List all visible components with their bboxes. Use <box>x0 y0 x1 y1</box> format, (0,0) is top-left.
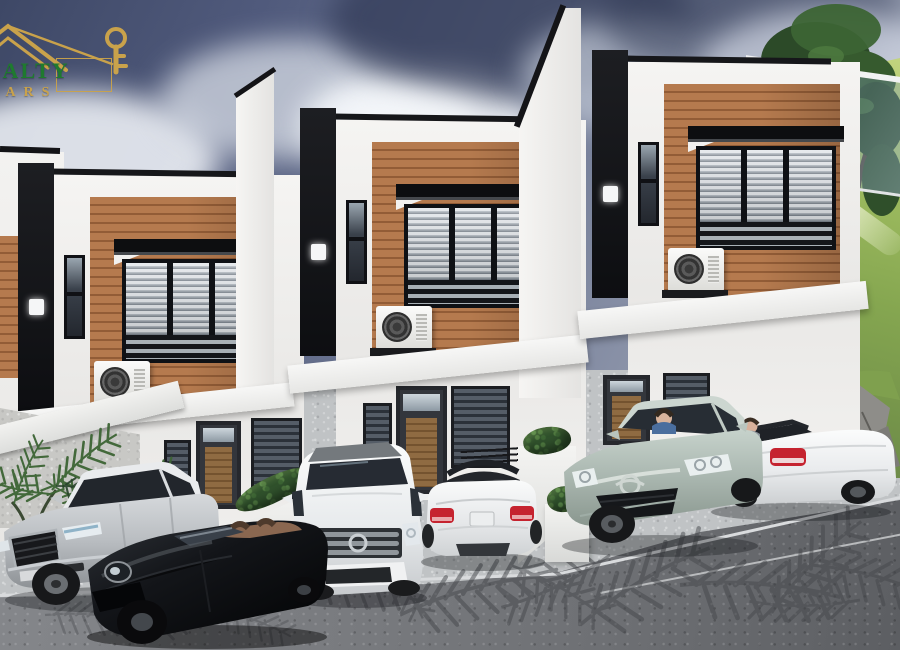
picture-window <box>696 146 836 250</box>
logo-text-line1: REALTY <box>0 58 70 84</box>
wall-lamp <box>603 186 618 202</box>
realty-years-logo: REALTY YEARS <box>0 2 204 117</box>
unit0-wood-panel <box>0 236 18 378</box>
black-accent-panel <box>18 163 54 411</box>
air-conditioner <box>376 306 432 350</box>
car-black-convertible <box>82 472 332 650</box>
wall-lamp <box>29 299 44 315</box>
car-white-convertible-rear <box>418 448 548 573</box>
logo-text-line2: YEARS <box>0 85 57 101</box>
door-transom <box>403 394 439 411</box>
wall-lamp <box>311 244 326 260</box>
air-conditioner <box>668 248 724 292</box>
black-accent-panel <box>592 50 628 298</box>
narrow-window <box>346 200 367 284</box>
door-transom <box>203 428 234 442</box>
window-louvers <box>700 222 832 246</box>
rendered-scene: REALTY YEARS <box>0 0 900 650</box>
window-canopy <box>688 126 844 142</box>
party-wall-1-2 <box>236 70 274 400</box>
narrow-window <box>638 142 659 226</box>
black-accent-panel <box>300 108 336 356</box>
narrow-window <box>64 255 85 339</box>
car-sage-sedan <box>560 388 765 560</box>
